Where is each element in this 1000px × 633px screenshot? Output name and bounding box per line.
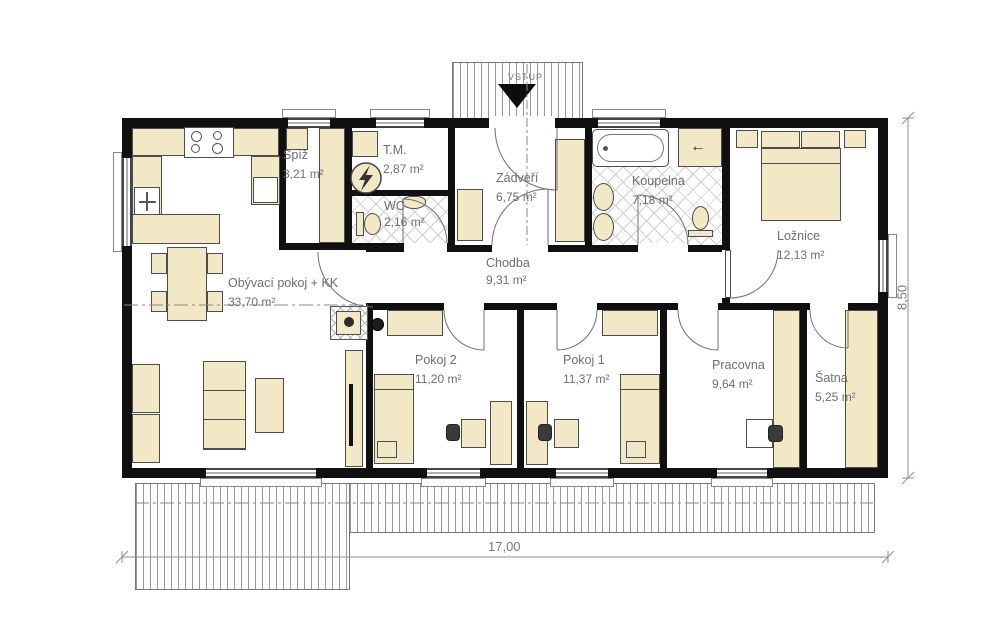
room-area: 3,21 m² <box>283 165 324 184</box>
entrance-label: VSTUP <box>508 72 543 82</box>
room-area: 12,13 m² <box>777 246 824 265</box>
window-sill <box>711 478 773 487</box>
dining-chair <box>151 253 167 274</box>
room-area: 33,70 m² <box>228 293 338 312</box>
room-name: Ložnice <box>777 227 824 246</box>
chimney-icon <box>371 318 384 331</box>
bathtub-drain-icon <box>603 146 608 151</box>
pillow <box>377 441 397 458</box>
room-label-koupelna: Koupelna 7,18 m² <box>632 172 685 210</box>
terrace-left <box>135 483 350 590</box>
desk-chair <box>538 424 552 441</box>
door-gap-zadveri <box>492 243 548 252</box>
desk <box>554 419 579 448</box>
dining-chair <box>207 291 223 312</box>
desk <box>461 419 486 448</box>
window-loznice <box>878 240 888 292</box>
room-name: Obývací pokoj + KK <box>228 274 338 293</box>
window-sill <box>592 109 666 118</box>
bathtub <box>592 129 669 167</box>
headboard-cushion <box>761 131 800 148</box>
wc-toilet-bowl <box>364 213 381 235</box>
kitchen-sink <box>134 187 160 216</box>
entrance-arrow-icon <box>498 84 536 108</box>
room-label-loznice: Ložnice 12,13 m² <box>777 227 824 265</box>
door-gap-wc <box>404 243 447 252</box>
room-label-chodba: Chodba 9,31 m² <box>486 255 530 288</box>
tall-cabinet <box>773 310 800 468</box>
tv <box>349 384 353 446</box>
bath-sink <box>593 213 614 241</box>
coffee-table <box>255 378 284 433</box>
fireplace-flue-icon <box>344 317 354 327</box>
wardrobe <box>602 310 658 336</box>
tall-cabinet <box>490 401 512 465</box>
window-pokoj2 <box>427 468 480 478</box>
room-name: Pokoj 1 <box>563 351 609 370</box>
window-sill <box>113 152 122 252</box>
window-spiz <box>288 118 330 128</box>
room-area: 9,31 m² <box>486 272 530 288</box>
door-gap-koupelna <box>638 243 688 252</box>
door-gap-pokoj1 <box>557 303 597 310</box>
window-sill <box>282 109 336 118</box>
room-name: Spíž <box>283 146 324 165</box>
tv-stand <box>345 350 363 467</box>
room-name: T.M. <box>383 141 424 160</box>
entry-wardrobe <box>555 139 585 242</box>
sideboard <box>132 364 160 413</box>
room-area: 2,87 m² <box>383 160 424 179</box>
burner-icon <box>213 131 222 140</box>
bath-toilet-tank <box>688 230 713 237</box>
wardrobe <box>387 310 443 336</box>
sideboard <box>132 414 160 463</box>
room-area: 5,25 m² <box>815 388 856 407</box>
window-sill <box>370 109 430 118</box>
room-area: 11,37 m² <box>563 370 609 389</box>
door-gap-satna <box>810 303 848 310</box>
window-pracovna <box>717 468 767 478</box>
room-label-spiz: Spíž 3,21 m² <box>283 146 324 184</box>
room-floor-chodba <box>366 252 722 303</box>
room-name: Pracovna <box>712 356 765 375</box>
door-gap-pracovna <box>678 303 718 310</box>
room-name: Zádveří <box>496 169 538 188</box>
bath-sink <box>593 183 614 211</box>
wc-toilet-tank <box>356 212 364 236</box>
window-sill <box>550 478 614 487</box>
door-gap-entrance <box>489 116 555 130</box>
window-kitchen <box>122 158 132 246</box>
burner-icon <box>212 143 223 154</box>
headboard-cushion <box>801 131 840 148</box>
room-label-pokoj2: Pokoj 2 11,20 m² <box>415 351 461 389</box>
room-label-living: Obývací pokoj + KK 33,70 m² <box>228 274 338 312</box>
tm-shelf <box>352 131 378 157</box>
room-area: 11,20 m² <box>415 370 461 389</box>
window-pokoj1 <box>556 468 608 478</box>
window-koupelna <box>598 118 660 128</box>
stove <box>184 127 234 158</box>
room-label-zadveri: Zádveří 6,75 m² <box>496 169 538 207</box>
room-area: 6,75 m² <box>496 188 538 207</box>
pillow <box>626 441 646 458</box>
floor-plan: VSTUP <box>0 0 1000 633</box>
room-label-pokoj1: Pokoj 1 11,37 m² <box>563 351 609 389</box>
door-gap-pokoj2 <box>444 303 484 310</box>
dimension-width: 17,00 <box>488 539 521 554</box>
window-living-slider <box>206 468 316 478</box>
room-area: 2,16 m² <box>384 215 425 230</box>
room-label-wc: WC 2,16 m² <box>384 199 425 230</box>
window-sill <box>200 478 322 487</box>
room-name: Koupelna <box>632 172 685 191</box>
room-area: 7,18 m² <box>632 191 685 210</box>
kitchen-appliance <box>253 177 278 203</box>
closet-arrow-icon: ← <box>690 139 706 155</box>
terrace-main <box>349 483 875 533</box>
room-area: 9,64 m² <box>712 375 765 394</box>
nightstand <box>844 130 866 148</box>
room-name: Pokoj 2 <box>415 351 461 370</box>
window-sill <box>421 478 486 487</box>
room-name: Šatna <box>815 369 856 388</box>
entry-bench <box>457 189 483 241</box>
double-bed <box>761 148 841 221</box>
room-name: Chodba <box>486 255 530 272</box>
nightstand <box>736 130 758 148</box>
sofa <box>203 361 246 450</box>
room-label-tm: T.M. 2,87 m² <box>383 141 424 179</box>
burner-icon <box>191 144 200 153</box>
room-label-satna: Šatna 5,25 m² <box>815 369 856 407</box>
room-name: WC <box>384 199 425 215</box>
dining-chair <box>207 253 223 274</box>
kitchen-counter-bottom <box>132 214 220 244</box>
burner-icon <box>191 131 202 142</box>
desk-chair <box>768 425 783 442</box>
window-tm <box>376 118 424 128</box>
dimension-height: 8,50 <box>895 276 910 320</box>
bath-toilet-bowl <box>692 206 709 230</box>
room-label-pracovna: Pracovna 9,64 m² <box>712 356 765 394</box>
dining-table <box>167 247 207 321</box>
desk-chair <box>446 424 460 441</box>
dining-chair <box>151 291 167 312</box>
door-leaf <box>725 250 731 298</box>
